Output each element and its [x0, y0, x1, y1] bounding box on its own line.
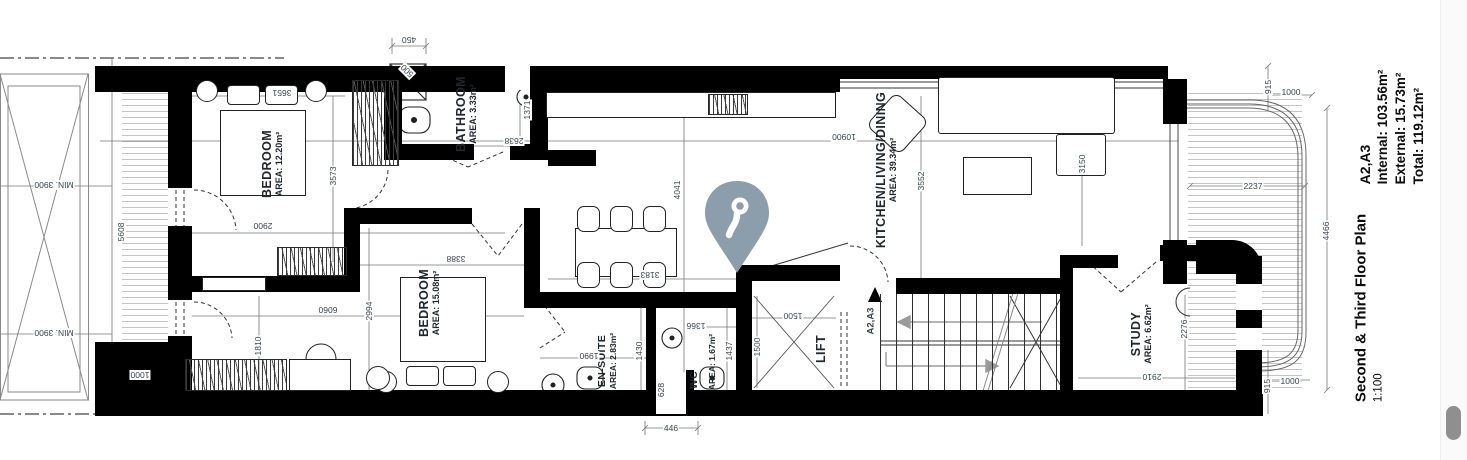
- dim-1437: 1437: [724, 341, 734, 362]
- dim-915-bottom: 915: [1262, 378, 1272, 394]
- staircase: [880, 294, 1062, 390]
- dim-3388: 3388: [446, 254, 467, 264]
- bedside-table: [305, 80, 327, 102]
- dim-1371: 1371: [522, 100, 532, 121]
- wall-segment: [524, 208, 540, 292]
- dim-450: 450: [401, 35, 417, 45]
- dim-2910: 2910: [1142, 372, 1163, 382]
- room-name: KITCHEN/LIVING/DINING: [874, 92, 888, 248]
- room-area: AREA: 2.83m²: [608, 333, 618, 389]
- room-name: BEDROOM: [260, 130, 274, 198]
- dim-1000-bottom: 1000: [1280, 376, 1301, 386]
- room-label-study: STUDY AREA: 6.62m²: [1129, 304, 1153, 364]
- room-label-bedroom2: BEDROOM AREA: 15.08m²: [417, 269, 441, 337]
- area-schedule: A2,A3 Internal: 103.56m² External: 15.73…: [1356, 70, 1428, 185]
- chair: [577, 262, 600, 288]
- chair: [643, 206, 666, 232]
- dim-1000-top: 1000: [1281, 87, 1302, 97]
- room-area: AREA: 6.62m²: [1143, 304, 1153, 364]
- hob: [708, 94, 748, 115]
- pillow: [443, 366, 476, 386]
- dim-1000-left: 1000: [130, 370, 151, 380]
- wall-segment: [1236, 256, 1262, 390]
- pillow: [227, 85, 260, 105]
- room-label-bedroom1: BEDROOM AREA: 12.20m²: [260, 130, 284, 198]
- room-label-kitchen: KITCHEN/LIVING/DINING AREA: 39.34m²: [874, 92, 898, 248]
- cabinet: [202, 277, 266, 291]
- scrollbar-track[interactable]: [1440, 0, 1467, 460]
- dim-4466: 4466: [1321, 221, 1331, 242]
- room-name: WC: [688, 371, 700, 389]
- wall-segment: [896, 278, 1068, 294]
- dim-3573: 3573: [328, 166, 338, 187]
- location-pin-marker[interactable]: [703, 180, 771, 274]
- plan-title: Second & Third Floor Plan: [1352, 214, 1371, 402]
- dim-2237: 2237: [1243, 181, 1264, 191]
- room-area: AREA: 12.20m²: [274, 130, 284, 198]
- internal-area: Internal: 103.56m²: [1374, 70, 1392, 185]
- wall-segment: [545, 66, 840, 92]
- external-area: External: 15.73m²: [1392, 70, 1410, 185]
- bedside-table: [487, 371, 509, 393]
- bedside-table: [196, 80, 218, 102]
- sofa: [938, 77, 1115, 134]
- room-name: BEDROOM: [417, 269, 431, 337]
- sheet-refs: A2,A3: [1356, 70, 1374, 185]
- dim-2276: 2276: [1179, 319, 1189, 340]
- room-area: AREA: 15.08m²: [431, 269, 441, 337]
- room-label-ensuite: EN-SUITE AREA: 2.83m²: [596, 333, 618, 389]
- dim-3651: 3651: [272, 88, 293, 98]
- dim-1500-width: 1500: [783, 311, 804, 321]
- room-label-wc-name: WC: [688, 371, 700, 389]
- dim-10900: 10900: [831, 132, 857, 142]
- kitchen-counter: [546, 92, 836, 118]
- dim-2900: 2900: [253, 221, 274, 231]
- dresser: [289, 359, 351, 391]
- plan-scale: 1:100: [1371, 214, 1387, 402]
- location-pin-icon: [703, 180, 771, 274]
- room-label-wc-area: AREA: 1.67m²: [707, 334, 717, 390]
- dim-1366: 1366: [686, 321, 707, 331]
- coffee-table: [963, 157, 1032, 195]
- room-area: AREA: 3.33m²: [468, 76, 478, 152]
- dim-4041: 4041: [672, 180, 682, 201]
- dim-2994: 2994: [364, 301, 374, 322]
- wall-segment: [95, 66, 505, 92]
- dim-446: 446: [663, 423, 679, 433]
- room-label-lift: LIFT: [814, 335, 828, 363]
- wardrobe: [185, 359, 287, 391]
- wall-segment: [646, 292, 656, 416]
- bed: [400, 277, 486, 362]
- pillow: [406, 366, 439, 386]
- total-area: Total: 119.12m²: [1410, 70, 1428, 185]
- room-label-bathroom: BATHROOM AREA: 3.33m²: [454, 76, 478, 152]
- room-name: EN-SUITE: [596, 333, 608, 389]
- study-window: [1236, 328, 1262, 350]
- annotation-min-3900-bottom: MIN. 3900: [33, 328, 74, 338]
- dim-1810: 1810: [253, 336, 263, 357]
- dim-628: 628: [656, 382, 666, 398]
- dim-2638: 2638: [504, 136, 525, 146]
- chair: [610, 262, 633, 288]
- dim-3552: 3552: [916, 171, 926, 192]
- wall-segment: [344, 208, 472, 224]
- chair: [610, 206, 633, 232]
- wall-segment: [1163, 79, 1187, 124]
- room-area: AREA: 39.34m²: [888, 92, 898, 248]
- room-name: BATHROOM: [454, 76, 468, 152]
- annotation-stair-ref: A2,A3: [866, 307, 877, 336]
- dim-1500-depth: 1500: [752, 337, 762, 358]
- room-name: STUDY: [1129, 304, 1143, 364]
- study-window: [1236, 284, 1262, 310]
- dim-6060: 6060: [318, 305, 339, 315]
- wall-segment: [736, 265, 752, 390]
- dim-3183: 3183: [640, 270, 661, 280]
- wall-segment: [548, 150, 596, 166]
- scrollbar-thumb[interactable]: [1446, 406, 1461, 440]
- chair: [577, 206, 600, 232]
- dim-5608: 5608: [116, 222, 126, 243]
- floor-plan-canvas: BEDROOM AREA: 12.20m² BATHROOM AREA: 3.3…: [0, 0, 1467, 460]
- dim-915-top: 915: [1263, 79, 1273, 95]
- room-name: LIFT: [814, 335, 828, 363]
- annotation-min-3900-top: MIN. 3900: [33, 180, 74, 190]
- room-area: AREA: 1.67m²: [707, 334, 717, 390]
- wardrobe: [277, 247, 347, 276]
- dim-1430: 1430: [634, 341, 644, 362]
- dim-1990: 1990: [579, 351, 600, 361]
- plan-title-block: Second & Third Floor Plan 1:100: [1352, 214, 1387, 402]
- wall-segment: [1060, 255, 1118, 268]
- wall-segment: [168, 88, 192, 188]
- wardrobe: [352, 80, 399, 166]
- dim-3150: 3150: [1077, 154, 1087, 175]
- stool: [366, 366, 390, 390]
- wall-segment: [524, 292, 752, 308]
